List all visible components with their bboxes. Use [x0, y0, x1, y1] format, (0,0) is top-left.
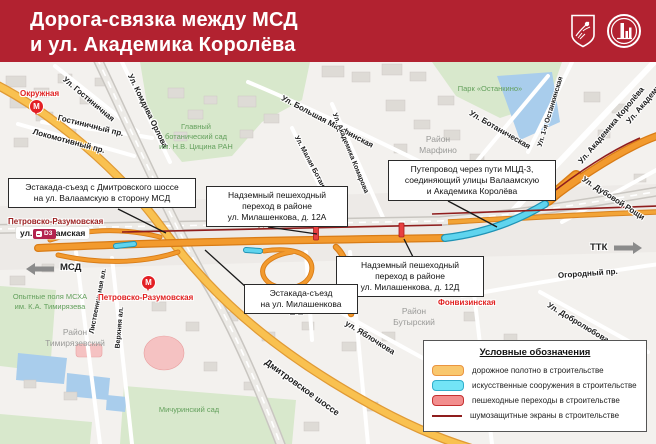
- page-title-line2: и ул. Академика Королёва: [30, 33, 298, 58]
- legend-swatch-crossings: [432, 395, 464, 406]
- metro-m-glyph: М: [142, 276, 155, 289]
- legend-row-crossings: пешеходные переходы в строительстве: [432, 393, 638, 408]
- legend-title: Условные обозначения: [432, 347, 638, 358]
- legend-swatch-structures: [432, 380, 464, 391]
- ttk-direction-arrow-icon: [612, 241, 642, 259]
- district-label-butyrsky: Район Бутырский: [374, 306, 454, 328]
- callout-crossing-12d: Надземный пешеходный переход в районе ул…: [336, 256, 484, 297]
- callout-estakada-milashenkova: Эстакада-съезд на ул. Милашенкова: [244, 284, 358, 314]
- d3-line-badge: D3: [33, 229, 56, 239]
- legend-swatch-road: [432, 365, 464, 376]
- legend-row-road: дорожное полотно в строительстве: [432, 363, 638, 378]
- legend-row-structures: искусственные сооружения в строительстве: [432, 378, 638, 393]
- metro-icon-petrovsko-razumovskaya: М: [142, 276, 155, 289]
- legend-box: Условные обозначения дорожное полотно в …: [423, 340, 647, 432]
- header-logos: [570, 13, 642, 54]
- msd-direction-arrow-icon: [26, 262, 56, 280]
- d3-station-label: Петровско-Разумовская: [8, 217, 103, 226]
- park-label-ostankino: Парк «Останкино»: [440, 84, 540, 94]
- msd-direction-label: МСД: [60, 262, 81, 273]
- stroykompleks-logo-icon: [606, 13, 642, 54]
- moscow-coat-of-arms-icon: [570, 14, 596, 53]
- metro-label-okruzhnaya: Окружная: [20, 89, 59, 98]
- legend-label-structures: искусственные сооружения в строительстве: [472, 381, 637, 390]
- ttk-direction-label: ТТК: [590, 242, 607, 253]
- metro-label-fonvizinskaya: Фонвизинская: [438, 298, 496, 307]
- legend-swatch-noise-screens: [432, 415, 462, 417]
- legend-label-crossings: пешеходные переходы в строительстве: [472, 396, 620, 405]
- legend-label-road: дорожное полотно в строительстве: [472, 366, 604, 375]
- infographic-page: Дорога-связка между МСД и ул. Академика …: [0, 0, 656, 444]
- legend-row-noise-screens: шумозащитные экраны в строительстве: [432, 408, 638, 423]
- callout-overpass-mcd3: Путепровод через пути МЦД-3, соединяющий…: [388, 160, 556, 201]
- metro-m-glyph: М: [30, 100, 43, 113]
- metro-label-petrovsko-razumovskaya: Петровско-Разумовская: [98, 293, 193, 302]
- header-bar: Дорога-связка между МСД и ул. Академика …: [0, 0, 656, 62]
- metro-icon-okruzhnaya: М: [30, 100, 43, 113]
- park-label-botanical-garden: Главный ботанический сад им. Н.В. Цицина…: [134, 122, 258, 151]
- district-label-marfino: Район Марфино: [404, 134, 472, 156]
- park-label-msha-fields: Опытные поля МСХА им. К.А. Тимирязева: [0, 292, 100, 312]
- park-label-michurinsky: Мичуринский сад: [148, 405, 230, 415]
- district-label-timiryazevsky: Район Тимирязевский: [25, 327, 125, 349]
- page-title-line1: Дорога-связка между МСД: [30, 8, 298, 33]
- callout-estakada-dmitrovskoe: Эстакада-съезд с Дмитровского шоссе на у…: [8, 178, 196, 208]
- callout-crossing-12a: Надземный пешеходный переход в районе ул…: [206, 186, 348, 227]
- legend-label-noise-screens: шумозащитные экраны в строительстве: [470, 411, 619, 420]
- page-title: Дорога-связка между МСД и ул. Академика …: [30, 8, 298, 58]
